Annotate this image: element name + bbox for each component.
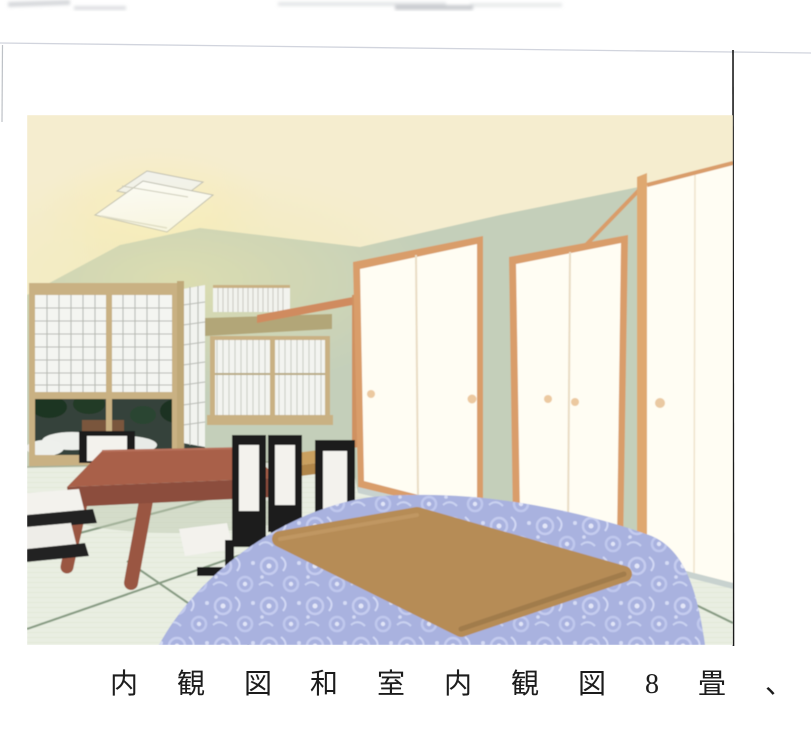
door-handle bbox=[367, 390, 375, 398]
fusuma-closet-2 bbox=[509, 235, 628, 550]
figure-caption: 内 観 図和 室 内 観 図 8 畳 、 6 畳 bbox=[110, 662, 811, 702]
door-handle bbox=[544, 395, 552, 403]
door-handle bbox=[468, 395, 477, 404]
door-handle bbox=[655, 398, 665, 408]
scan-smudges bbox=[8, 0, 562, 10]
scan-hairline bbox=[0, 43, 811, 53]
door-handle bbox=[571, 398, 579, 406]
caption-description: 和 室 内 観 図 8 畳 、 6 畳 bbox=[310, 669, 811, 700]
interior-rendering bbox=[0, 115, 733, 645]
closet-post bbox=[637, 173, 647, 563]
fusuma-closet-3 bbox=[637, 163, 733, 583]
scan-vertical-line bbox=[733, 50, 734, 646]
scanned-page: 内 観 図和 室 内 観 図 8 畳 、 6 畳 bbox=[0, 0, 811, 750]
caption-label: 内 観 図 bbox=[110, 669, 288, 700]
scan-left-tick bbox=[2, 45, 3, 122]
fusuma-doors bbox=[647, 163, 733, 583]
main-window bbox=[207, 336, 333, 425]
fusuma-closet-1 bbox=[353, 236, 483, 517]
transom-window bbox=[213, 285, 290, 312]
page-canvas bbox=[0, 0, 811, 750]
